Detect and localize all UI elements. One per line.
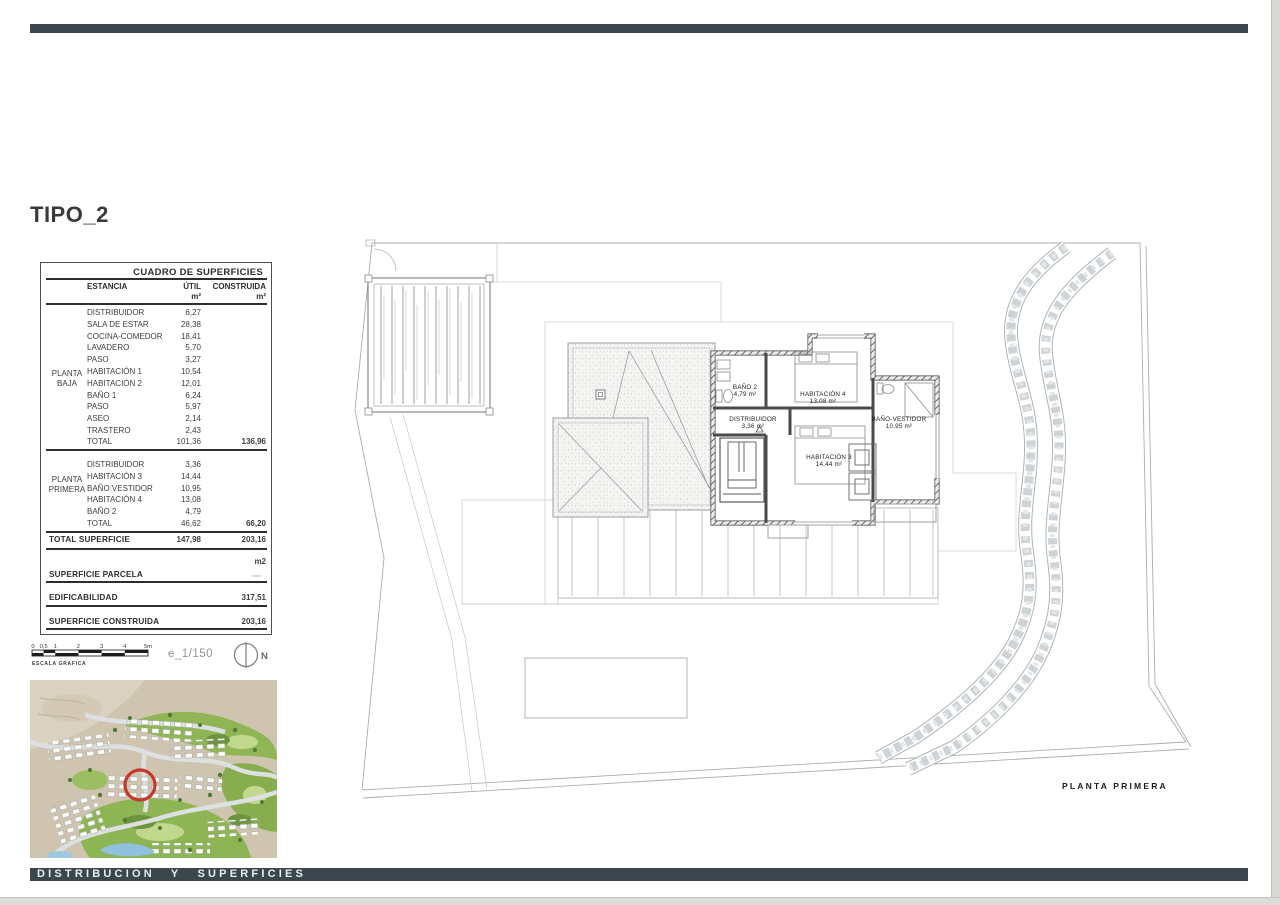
util-value: 2,14 (185, 413, 201, 425)
scale-tick: 3 (100, 644, 103, 650)
table-row: ASEO 2,14 (41, 413, 271, 425)
rule (46, 605, 267, 607)
room-name: HABITACIÓN 1 (87, 366, 142, 378)
room-name: BAÑO VESTIDOR (87, 483, 153, 495)
scale-tick: 0,5 (40, 644, 48, 650)
scale-bar: 0 0,5 1 2 3 4 5m ESCALA GRAFICA (30, 641, 160, 669)
util-value: 12,01 (181, 378, 201, 390)
rule (46, 449, 267, 451)
room-name: HABITACIÓN 2 (87, 378, 142, 390)
total-row-baja: TOTAL 101,36 136,96 (41, 436, 271, 448)
room-label-bano2: BAÑO 2 (733, 382, 758, 391)
footer-bar: DISTRIBUCIÓN Y SUPERFICIES (30, 868, 1248, 881)
first-floor-block (713, 335, 939, 538)
util-value: 3,27 (185, 354, 201, 366)
rule (46, 581, 267, 583)
room-name: LAVADERO (87, 342, 129, 354)
col-construida: CONSTRUIDA (213, 282, 266, 291)
roof-secondary (553, 418, 648, 517)
room-label-hab3: HABITACIÓN 3 (806, 452, 852, 461)
table-row: BAÑO 2 4,79 (41, 506, 271, 518)
scale-tick: 0 (31, 644, 34, 650)
room-name: COCINA-COMEDOR (87, 331, 163, 343)
table-title: CUADRO DE SUPERFICIES (133, 267, 263, 278)
util-value: 5,70 (185, 342, 201, 354)
page-edge-bottom (0, 897, 1280, 905)
planta-baja-rows: DISTRIBUIDOR 6,27 SALA DE ESTAR 28,38 CO… (41, 307, 271, 437)
pool-terrace (525, 658, 687, 718)
rule (46, 548, 267, 550)
total-row-primera: TOTAL 46,62 66,20 (41, 518, 271, 530)
rule (46, 278, 267, 280)
room-name: PASO (87, 354, 109, 366)
room-name: DISTRIBUIDOR (87, 307, 144, 319)
room-area-hab4: 13,08 m² (810, 398, 836, 405)
plan-caption: PLANTA PRIMERA (1062, 781, 1168, 791)
surface-table: CUADRO DE SUPERFICIES ESTANCIA ÚTIL CONS… (40, 262, 272, 635)
unit-util: m² (191, 292, 201, 301)
util-value: 10,54 (181, 366, 201, 378)
room-label-distribuidor: DISTRIBUIDOR (729, 416, 777, 423)
util-value: 13,08 (181, 494, 201, 506)
sheet-title: TIPO_2 (30, 202, 109, 228)
scale-bar-blocks (32, 650, 148, 656)
pergola (365, 275, 493, 415)
room-name: DISTRIBUIDOR (87, 459, 144, 471)
table-row: LAVADERO 5,70 (41, 342, 271, 354)
util-value: 2,43 (185, 425, 201, 437)
util-value: 5,97 (185, 401, 201, 413)
north-indicator: N (232, 640, 270, 670)
room-name: HABITACIÓN 3 (87, 471, 142, 483)
util-value: 6,24 (185, 390, 201, 402)
footer-title: DISTRIBUCIÓN Y SUPERFICIES (37, 868, 306, 881)
room-area-bano2: 4,79 m² (734, 391, 757, 398)
util-value: 18,41 (181, 331, 201, 343)
table-row: DISTRIBUIDOR 3,36 (41, 459, 271, 471)
scale-ratio: e_1/150 (168, 648, 213, 660)
room-label-bano-vestidor: BAÑO-VESTIDOR (872, 414, 927, 423)
room-name: BAÑO 1 (87, 390, 116, 402)
unit-construida: m² (256, 292, 266, 301)
scale-tick: 2 (77, 644, 80, 650)
table-row: SALA DE ESTAR 28,38 (41, 319, 271, 331)
site-plan: BAÑO 2 4,79 m² HABITACIÓN 4 13,08 m² DIS… (340, 230, 1200, 830)
scale-caption: ESCALA GRAFICA (32, 661, 86, 667)
util-value: 10,95 (181, 483, 201, 495)
planta-primera-rows: DISTRIBUIDOR 3,36 HABITACIÓN 3 14,44 BAÑ… (41, 459, 271, 518)
room-name: BAÑO 2 (87, 506, 116, 518)
room-name: TRASTERO (87, 425, 131, 437)
superficie-parcela-row: SUPERFICIE PARCELA (41, 569, 271, 581)
table-row: BAÑO 1 6,24 (41, 390, 271, 402)
rule (46, 531, 267, 533)
room-area-bano-vestidor: 10,95 m² (886, 423, 912, 430)
unit-note: m2 (254, 557, 266, 566)
col-util: ÚTIL (183, 282, 201, 291)
sheet-page: TIPO_2 CUADRO DE SUPERFICIES ESTANCIA ÚT… (0, 0, 1280, 905)
table-row: PASO 3,27 (41, 354, 271, 366)
scale-tick: 5m (144, 644, 152, 650)
util-value: 6,27 (185, 307, 201, 319)
table-row: HABITACIÓN 4 13,08 (41, 494, 271, 506)
table-row: HABITACIÓN 2 12,01 (41, 378, 271, 390)
table-row: HABITACIÓN 3 14,44 (41, 471, 271, 483)
rule (46, 303, 267, 305)
top-rule (30, 24, 1248, 33)
util-value: 28,38 (181, 319, 201, 331)
room-area-hab3: 14,44 m² (816, 461, 842, 468)
scale-tick: 4 (123, 644, 127, 650)
table-row: PASO 5,97 (41, 401, 271, 413)
room-label-hab4: HABITACIÓN 4 (800, 389, 846, 398)
table-row: HABITACIÓN 1 10,54 (41, 366, 271, 378)
room-name: PASO (87, 401, 109, 413)
location-map (30, 680, 277, 858)
north-label: N (261, 651, 268, 662)
scale-tick: 1 (54, 644, 57, 650)
col-estancia: ESTANCIA (87, 282, 127, 291)
room-area-distribuidor: 3,36 m² (742, 423, 765, 430)
util-value: 14,44 (181, 471, 201, 483)
faded-value-mark (252, 575, 261, 577)
util-value: 4,79 (185, 506, 201, 518)
table-row: TRASTERO 2,43 (41, 425, 271, 437)
room-name: SALA DE ESTAR (87, 319, 149, 331)
superficie-construida-row: SUPERFICIE CONSTRUIDA 203,16 (41, 616, 271, 628)
util-value: 3,36 (185, 459, 201, 471)
room-name: ASEO (87, 413, 109, 425)
table-row: BAÑO VESTIDOR 10,95 (41, 483, 271, 495)
page-edge-right (1271, 0, 1280, 905)
edificabilidad-row: EDIFICABILIDAD 317,51 (41, 592, 271, 604)
room-name: HABITACIÓN 4 (87, 494, 142, 506)
total-superficie-row: TOTAL SUPERFICIE 147,98 203,16 (41, 534, 271, 546)
table-row: COCINA-COMEDOR 18,41 (41, 331, 271, 343)
rule (46, 628, 267, 630)
table-row: DISTRIBUIDOR 6,27 (41, 307, 271, 319)
